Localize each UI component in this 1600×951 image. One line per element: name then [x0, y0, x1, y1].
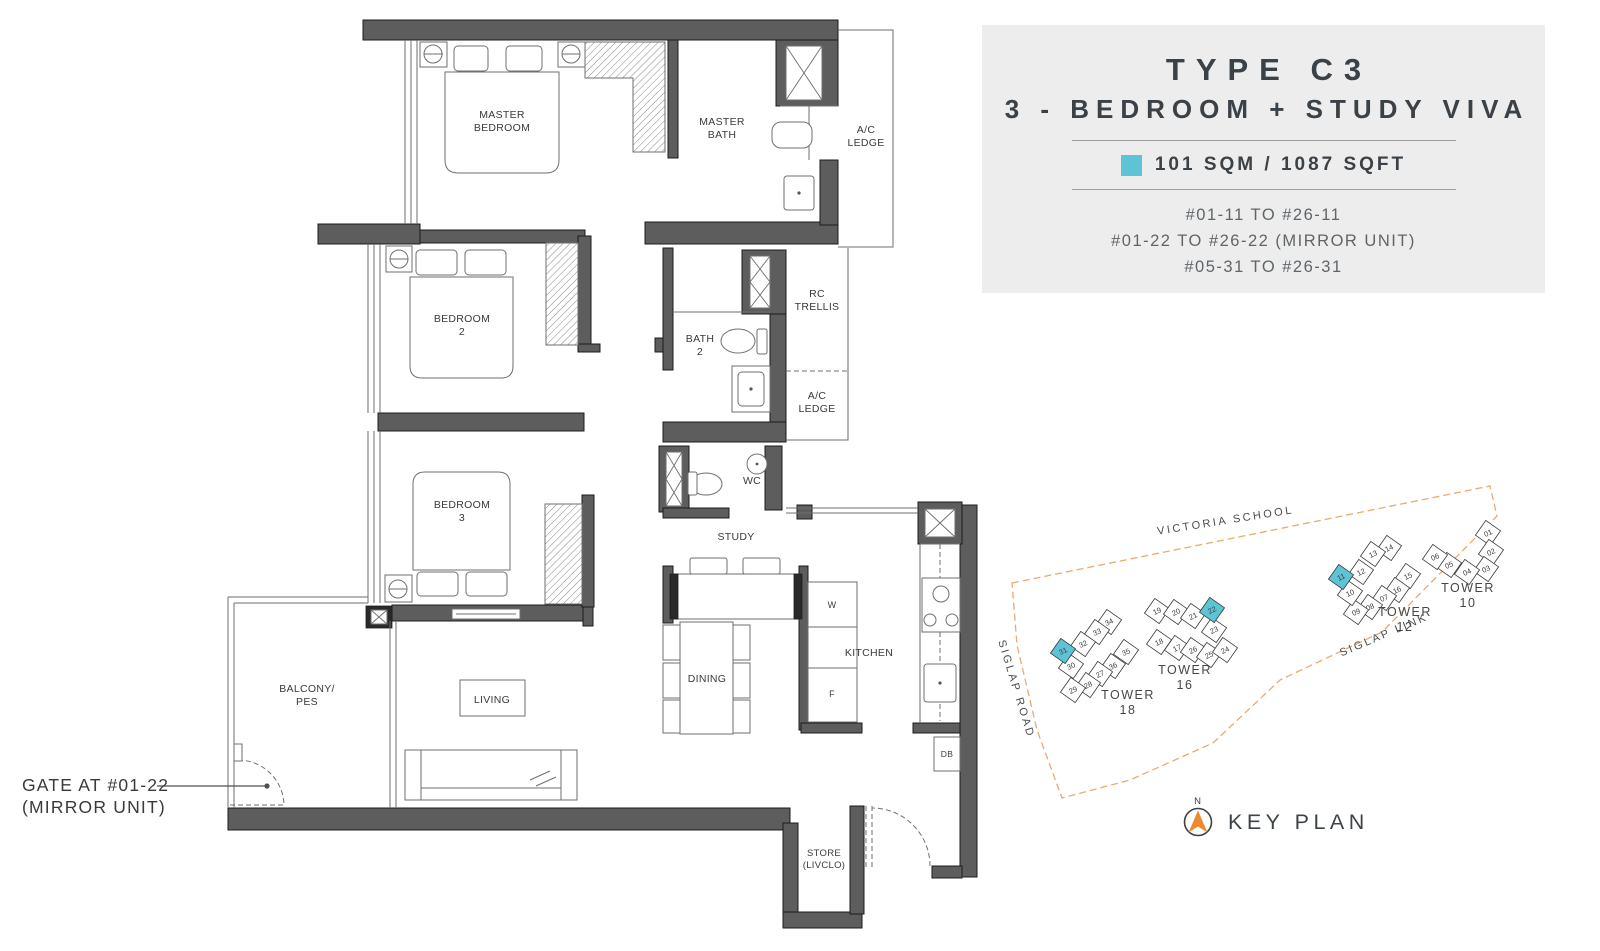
bedroom2-furniture	[386, 246, 513, 378]
gate-note: (MIRROR UNIT)	[22, 797, 166, 817]
unit-range-2: #01-22 TO #26-22 (MIRROR UNIT)	[1111, 228, 1416, 254]
page: MASTERBEDROOMMASTERBATHA/CLEDGEBEDROOM2B…	[0, 0, 1600, 951]
tower-number: 12	[1397, 620, 1414, 634]
keyplan-unit-12: 12	[1348, 559, 1373, 584]
room-label-kitchen: KITCHEN	[845, 647, 893, 659]
room-label-master-bath: BATH	[708, 129, 736, 141]
room-label-study: STUDY	[717, 531, 754, 543]
room-label-bedroom-2: BEDROOM	[434, 313, 490, 325]
room-label-bath-2: BATH	[686, 333, 714, 345]
bath2-fixtures	[673, 312, 770, 412]
wardrobes	[545, 42, 665, 604]
room-label-ac-ledge-top: LEDGE	[847, 137, 884, 149]
room-label-master-bath: MASTER	[699, 116, 745, 128]
master-bedroom-furniture	[420, 42, 585, 173]
divider-bottom	[1072, 189, 1456, 190]
keyplan-title: KEY PLAN	[1228, 810, 1369, 834]
north-label: N	[1194, 796, 1202, 807]
road-label-victoria-school: VICTORIA SCHOOL	[1156, 504, 1294, 537]
room-label-rc-trellis: RC	[809, 288, 825, 300]
bedroom3-furniture	[385, 472, 510, 602]
unit-ranges: #01-11 TO #26-11 #01-22 TO #26-22 (MIRRO…	[1111, 202, 1416, 280]
title-block: TYPE C3 3 - BEDROOM + STUDY VIVA 101 SQM…	[982, 25, 1545, 293]
room-label-washer: W	[828, 600, 837, 610]
room-label-balcony-pes: PES	[296, 696, 318, 708]
room-label-wc: WC	[743, 475, 761, 487]
tower-label: TOWER	[1158, 663, 1212, 677]
room-label-master-bedroom: MASTER	[479, 109, 525, 121]
tower-number: 10	[1460, 596, 1477, 610]
unit-range-1: #01-11 TO #26-11	[1111, 202, 1416, 228]
floorplan-svg: MASTERBEDROOMMASTERBATHA/CLEDGEBEDROOM2B…	[0, 0, 980, 951]
area-color-swatch	[1121, 155, 1142, 176]
room-label-bedroom-3: 3	[459, 512, 465, 524]
tower-number: 16	[1177, 678, 1194, 692]
tower-label: TOWER	[1101, 688, 1155, 702]
room-label-ac-ledge-top: A/C	[857, 124, 876, 136]
area-text: 101 SQM / 1087 SQFT	[1155, 154, 1406, 176]
room-label-balcony-pes: BALCONY/	[279, 683, 335, 695]
room-label-bath-2: 2	[697, 346, 703, 358]
keyplan-svg: VICTORIA SCHOOLSIGLAP ROADSIGLAP LINK 01…	[980, 480, 1595, 845]
room-label-store: (LIVCLO)	[803, 860, 846, 871]
road-label-siglap-road: SIGLAP ROAD	[995, 639, 1036, 740]
room-label-ac-ledge-mid: LEDGE	[798, 403, 835, 415]
tower-number: 18	[1120, 703, 1137, 717]
room-label-living: LIVING	[474, 694, 510, 706]
keyplan-unit-22: 22	[1199, 597, 1224, 622]
area-row: 101 SQM / 1087 SQFT	[1121, 141, 1406, 189]
walls	[228, 20, 977, 928]
unit-type-title: TYPE C3	[1155, 52, 1372, 88]
room-label-ac-ledge-mid: A/C	[808, 390, 827, 402]
tower-label: TOWER	[1378, 605, 1432, 619]
tower-label: TOWER	[1441, 581, 1495, 595]
room-label-dining: DINING	[688, 673, 727, 685]
gate-leader	[157, 783, 270, 788]
keyplan-legend: N KEY PLAN	[1185, 796, 1369, 836]
unit-range-3: #05-31 TO #26-31	[1111, 254, 1416, 280]
room-label-rc-trellis: TRELLIS	[795, 301, 840, 313]
room-label-master-bedroom: BEDROOM	[474, 122, 530, 134]
study-furniture	[670, 558, 802, 619]
gate-note: GATE AT #01-22	[22, 775, 169, 795]
room-label-db: DB	[941, 749, 953, 759]
keyplan-towers: 010203040506TOWER1014131215160708091011T…	[1050, 520, 1503, 717]
unit-name-title: 3 - BEDROOM + STUDY VIVA	[998, 94, 1530, 125]
room-label-bedroom-3: BEDROOM	[434, 499, 490, 511]
room-label-bedroom-2: 2	[459, 326, 465, 338]
room-label-fridge: F	[829, 689, 835, 699]
room-label-store: STORE	[807, 848, 841, 859]
